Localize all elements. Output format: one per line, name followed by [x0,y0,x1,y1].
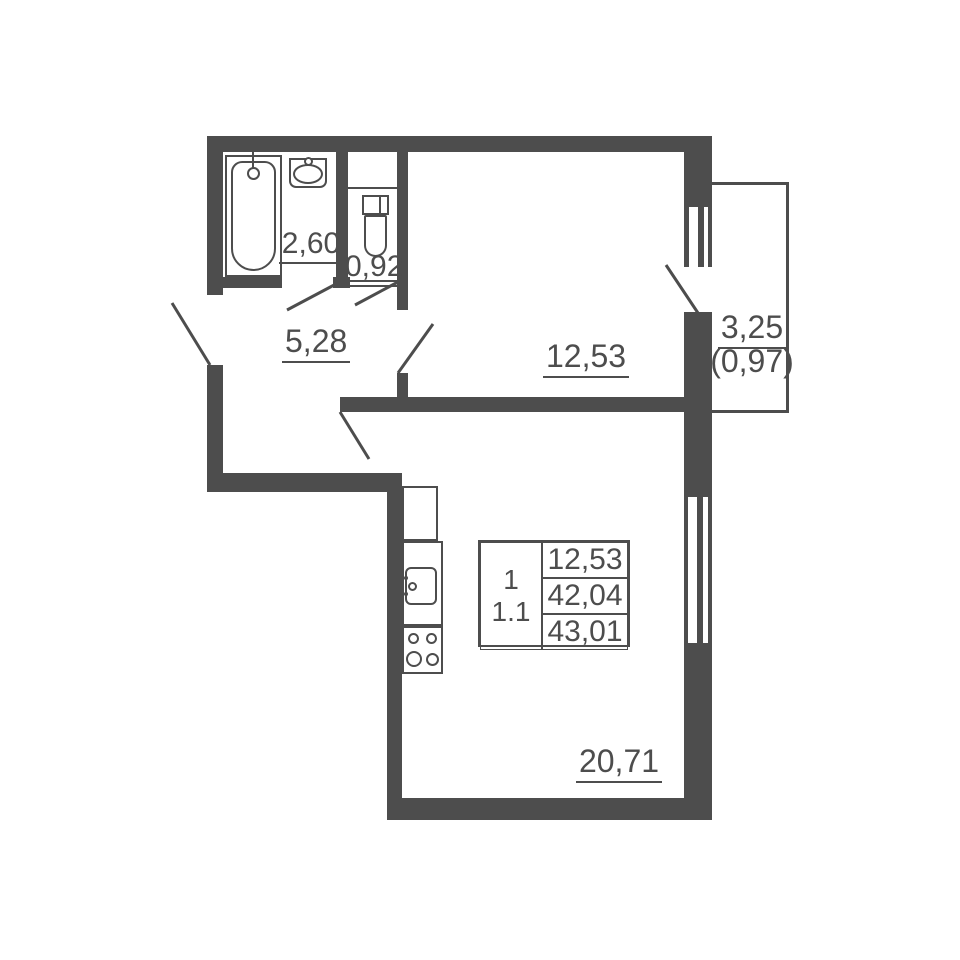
hallway-area-label: 5,28 [282,325,350,363]
bedroom-door-swing [398,324,433,373]
balcony-door-swing [666,265,698,313]
toilet-area-label: 0,92 [342,251,404,287]
bathroom-area-label: 2,60 [276,228,346,264]
stamp-total-area: 43,01 [542,614,628,650]
stamp-area-without-balcony: 42,04 [542,578,628,614]
bathroom-door-swing [287,284,336,310]
stamp-rooms-count: 1 [503,564,519,596]
stamp-unit-cell: 1 1.1 [480,542,542,650]
living-kitchen-area-label: 20,71 [572,745,666,783]
bedroom-area-label: 12,53 [543,340,629,378]
floor-plan: 2,60 0,92 5,28 12,53 20,71 3,25 (0,97) 1… [0,0,960,960]
balcony-reduced-area-label: (0,97) [708,345,796,379]
entrance-door-swing [172,303,210,365]
living-room-door-swing [340,412,369,459]
stamp-living-area: 12,53 [542,542,628,578]
stamp-unit-code: 1.1 [492,596,531,628]
apartment-stamp-table: 1 1.1 12,53 42,04 43,01 [478,540,630,647]
door-swings [0,0,960,960]
